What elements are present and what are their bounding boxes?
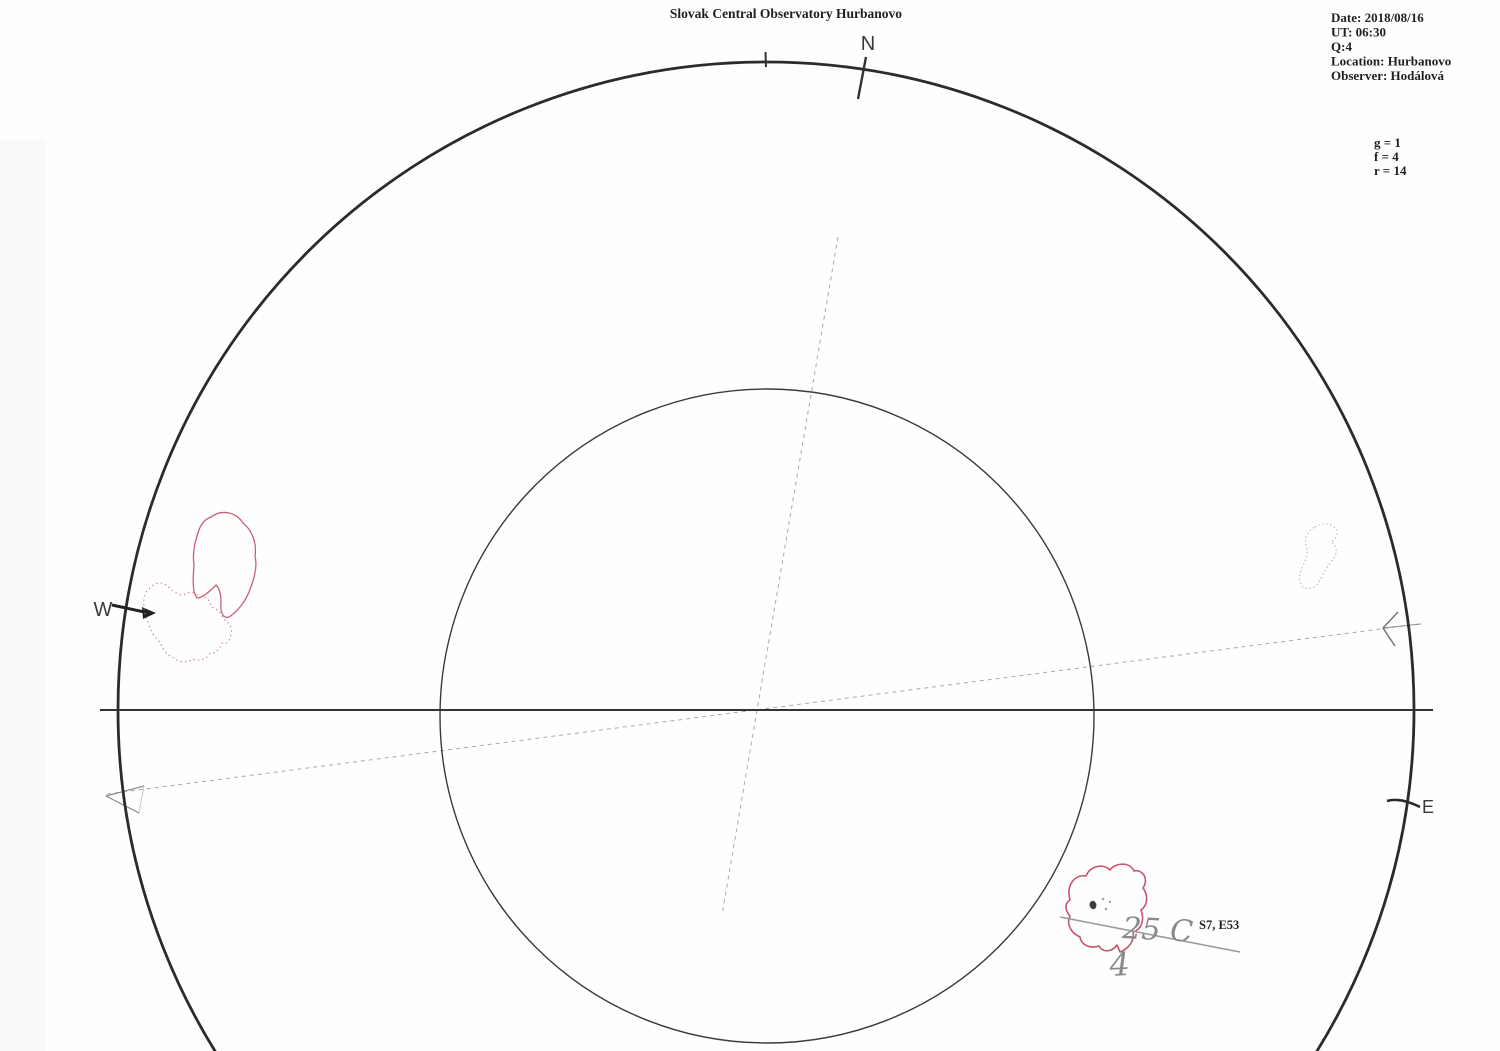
index-r: r = 14 (1374, 163, 1407, 178)
meta-quality: Q:4 (1331, 39, 1352, 54)
umbra-dot (1089, 900, 1098, 910)
inner-reference-circle (440, 389, 1094, 1043)
east-label: E (1422, 797, 1434, 817)
drift-arrow-right-shaft (1383, 624, 1421, 628)
index-g: g = 1 (1374, 135, 1401, 150)
sheet-title: Slovak Central Observatory Hurbanovo (670, 6, 902, 21)
drift-arrow-right-icon (1383, 612, 1398, 646)
faculae-east-outline (1300, 524, 1338, 589)
meta-date: Date: 2018/08/16 (1331, 10, 1424, 25)
handwritten-spot-count: 4 (1107, 945, 1130, 984)
solar-disk-circle (118, 62, 1414, 1051)
sunspot-group-west-lower-outline (144, 583, 232, 662)
polar-axis-dashed-line (722, 237, 838, 915)
observation-sheet: N W E Slovak Central Observatory Hurbano… (0, 0, 1500, 1051)
handwritten-group-label: 25 C (1121, 911, 1194, 950)
top-center-tick (766, 52, 767, 67)
meta-location: Location: Hurbanovo (1331, 54, 1451, 69)
meta-ut: UT: 06:30 (1331, 25, 1386, 40)
penumbra-specks (1102, 898, 1112, 911)
west-label: W (94, 599, 113, 621)
left-scan-shading (0, 140, 46, 1051)
north-label: N (861, 33, 875, 55)
position-label: S7, E53 (1199, 918, 1239, 932)
north-tick (858, 57, 866, 99)
index-f: f = 4 (1374, 149, 1399, 164)
sunspot-group-west-upper-outline (193, 512, 256, 617)
meta-observer: Observer: Hodálová (1331, 68, 1445, 83)
solar-drawing-svg: N W E Slovak Central Observatory Hurbano… (0, 0, 1500, 1051)
east-tick (1387, 800, 1420, 807)
